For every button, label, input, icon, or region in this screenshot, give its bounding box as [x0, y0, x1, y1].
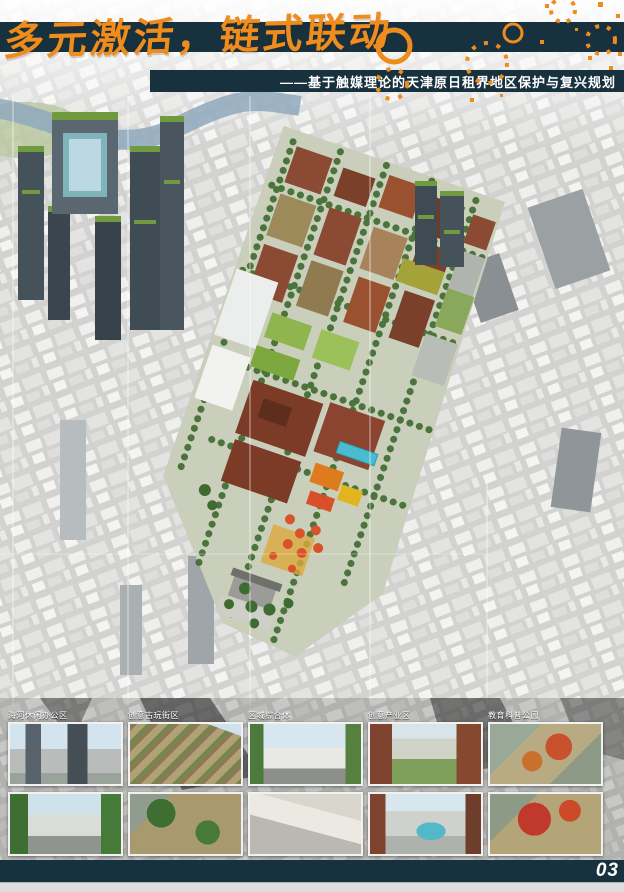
- render-thumbnail: [368, 792, 483, 856]
- render-thumbnail: [8, 722, 123, 786]
- thumbnail-label: 教育科普公园: [488, 710, 603, 722]
- render-thumbnail: [488, 722, 603, 786]
- thumbnail-cell: [128, 792, 243, 856]
- thumbnail-cell: 创意产业区: [368, 710, 483, 786]
- render-thumbnail: [368, 722, 483, 786]
- footer-strip: [0, 882, 624, 892]
- subtitle-band: ——基于触媒理论的天津原日租界地区保护与复兴规划: [150, 70, 624, 92]
- thumbnail-cell: 创意古玩街区: [128, 710, 243, 786]
- thumbnail-cell: 教育科普公园: [488, 710, 603, 786]
- thumbnail-cell: 海河休闲办公区: [8, 710, 123, 786]
- frame-building: [52, 112, 118, 214]
- thumbnail-cell: [488, 792, 603, 856]
- thumbnail-strip: 海河休闲办公区创意古玩街区区域综合体创意产业区教育科普公园: [8, 710, 603, 856]
- render-thumbnail: [488, 792, 603, 856]
- page-title: 多元激活，链式联动: [2, 0, 396, 67]
- thumbnail-cell: 区域综合体: [248, 710, 363, 786]
- footer-bar: 03: [0, 860, 624, 882]
- page-subtitle: ——基于触媒理论的天津原日租界地区保护与复兴规划: [280, 72, 616, 91]
- thumbnail-label: 海河休闲办公区: [8, 710, 123, 722]
- render-thumbnail: [128, 792, 243, 856]
- thumbnail-cell: [8, 792, 123, 856]
- render-thumbnail: [248, 792, 363, 856]
- thumbnail-cell: [368, 792, 483, 856]
- render-thumbnail: [248, 722, 363, 786]
- thumbnail-label: 创意产业区: [368, 710, 483, 722]
- thumbnail-label: 创意古玩街区: [128, 710, 243, 722]
- render-thumbnail: [128, 722, 243, 786]
- render-thumbnail: [8, 792, 123, 856]
- page-number: 03: [596, 860, 624, 882]
- thumbnail-label: 区域综合体: [248, 710, 363, 722]
- thumbnail-cell: [248, 792, 363, 856]
- presentation-board: 多元激活，链式联动 ——基于触媒理论的天津原日租界地区保护与复兴规划 海河休闲办…: [0, 0, 624, 892]
